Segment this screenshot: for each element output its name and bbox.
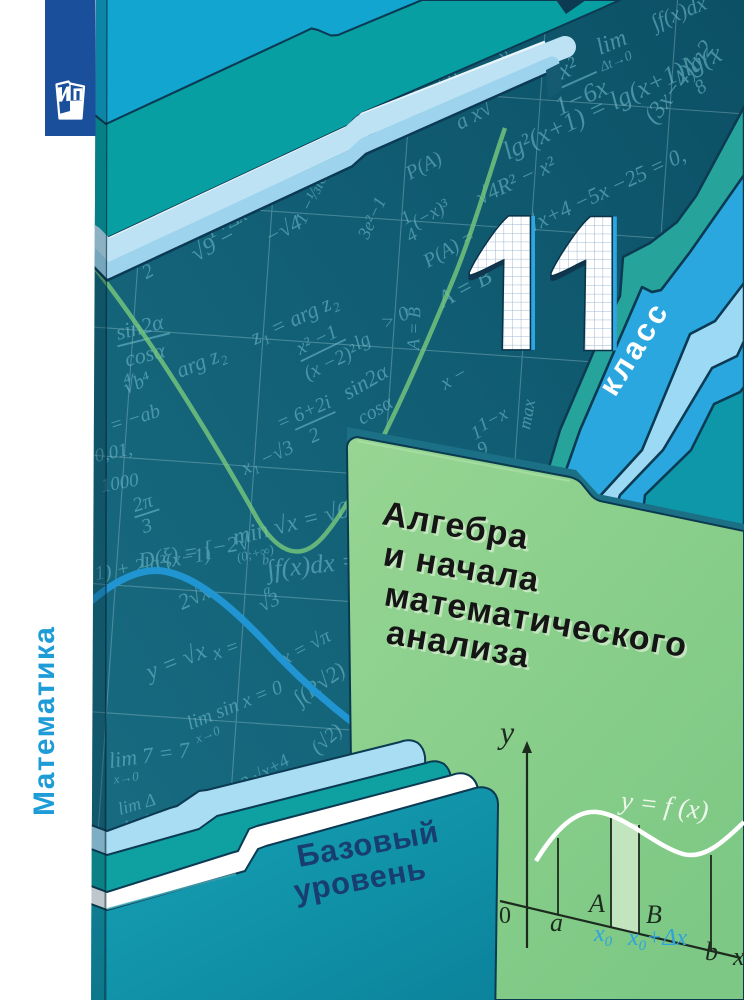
svg-text:y: y (497, 714, 515, 750)
svg-text:Математика: Математика (28, 626, 61, 816)
svg-text:b: b (705, 937, 718, 966)
svg-text:0: 0 (499, 903, 511, 929)
svg-text:a: a (550, 908, 563, 937)
svg-text:A: A (587, 889, 605, 918)
svg-text:A = B̄: A = B̄ (403, 307, 425, 351)
svg-text:x: x (732, 942, 744, 971)
svg-text:x0+Δx: x0+Δx (627, 925, 687, 954)
